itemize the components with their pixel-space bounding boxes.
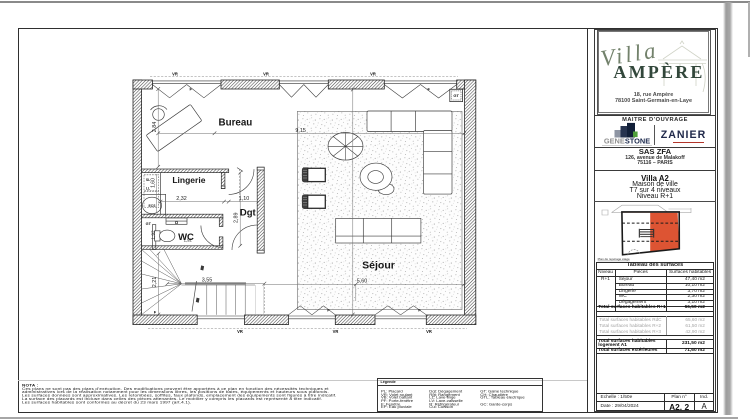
svg-text:3,55: 3,55 — [202, 278, 213, 284]
svg-text:2,84: 2,84 — [152, 122, 158, 133]
svg-text:VR: VR — [172, 72, 178, 77]
svg-text:Plan de repérage étage: Plan de repérage étage — [597, 257, 629, 261]
svg-text:SL: SL — [146, 178, 150, 182]
svg-text:VR: VR — [370, 72, 376, 77]
svg-text:2,32: 2,32 — [176, 196, 187, 202]
svg-text:1,10: 1,10 — [239, 196, 250, 202]
svg-text:2,21: 2,21 — [152, 277, 158, 288]
svg-text:1,60: 1,60 — [151, 178, 157, 188]
svg-text:GT: GT — [146, 222, 152, 226]
svg-text:ECS: ECS — [149, 204, 157, 208]
svg-text:2,89: 2,89 — [233, 212, 239, 223]
svg-text:5,60: 5,60 — [357, 278, 368, 284]
svg-text:GENESTONE: GENESTONE — [604, 137, 650, 146]
svg-text:LL: LL — [146, 186, 150, 190]
svg-text:F: F — [427, 86, 430, 91]
svg-text:VR: VR — [237, 329, 243, 334]
svg-text:Bureau: Bureau — [219, 118, 253, 129]
svg-text:9,15: 9,15 — [295, 128, 306, 134]
svg-text:1,92: 1,92 — [150, 230, 156, 240]
svg-text:VR: VR — [263, 72, 269, 77]
svg-text:F: F — [154, 309, 157, 314]
svg-text:GT: GT — [453, 93, 459, 98]
svg-text:VR: VR — [426, 329, 432, 334]
svg-text:VR: VR — [333, 329, 339, 334]
svg-text:Dgt: Dgt — [240, 208, 257, 219]
svg-text:Séjour: Séjour — [362, 260, 395, 272]
svg-text:1,92: 1,92 — [184, 238, 193, 243]
svg-text:Lingerie: Lingerie — [172, 175, 205, 185]
